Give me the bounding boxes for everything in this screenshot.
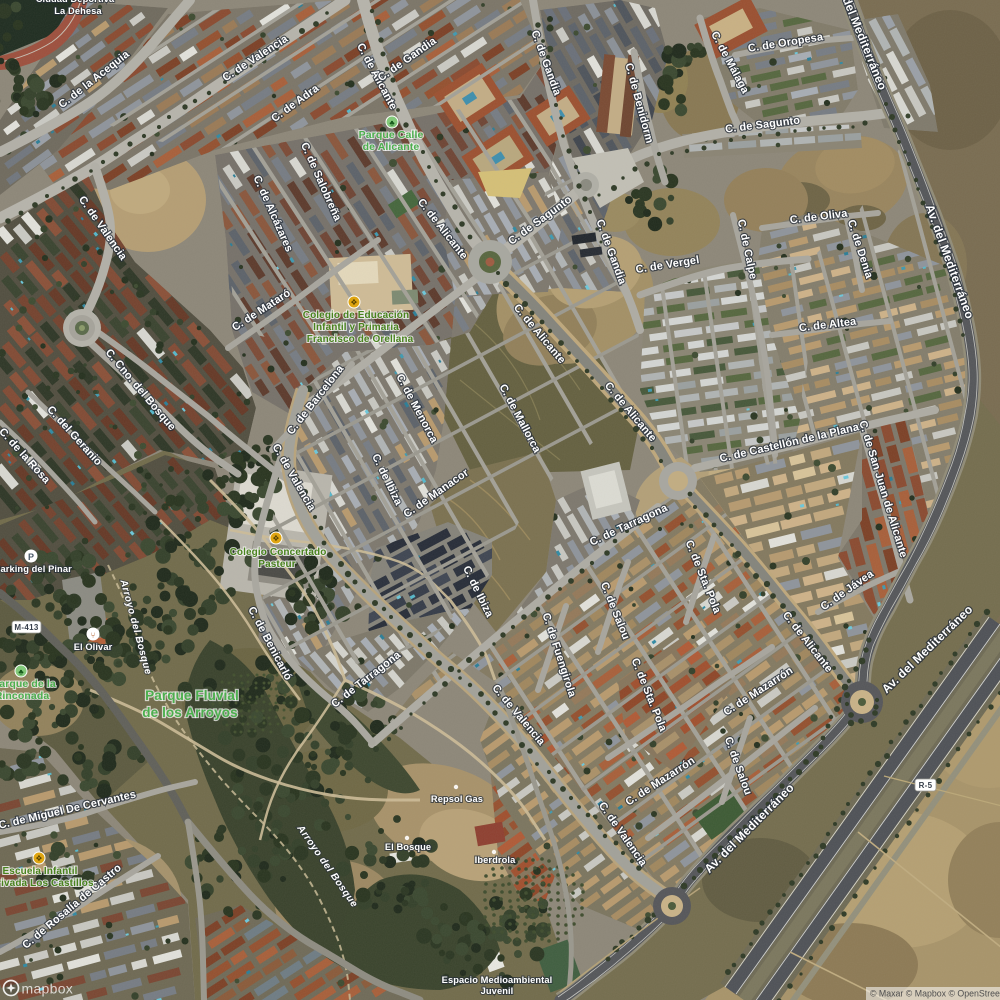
svg-text:Privada Los Castillos: Privada Los Castillos xyxy=(0,878,94,889)
svg-text:© Maxar © Mapbox © OpenStreetM: © Maxar © Mapbox © OpenStreetMap xyxy=(870,989,1000,999)
svg-text:El Bosque: El Bosque xyxy=(385,842,431,852)
svg-text:♣: ♣ xyxy=(389,119,395,128)
svg-text:Repsol Gas: Repsol Gas xyxy=(431,794,483,804)
svg-text:♣: ♣ xyxy=(18,668,24,677)
svg-text:R-5: R-5 xyxy=(919,781,933,790)
svg-text:Parque Calle: Parque Calle xyxy=(359,129,424,141)
svg-text:Parking del Pinar: Parking del Pinar xyxy=(0,564,72,574)
svg-text:❖: ❖ xyxy=(272,534,279,543)
svg-text:Espacio Medioambiental: Espacio Medioambiental xyxy=(442,975,553,985)
svg-text:Francisco de Orellana: Francisco de Orellana xyxy=(307,334,414,345)
svg-text:Parque Fluvial: Parque Fluvial xyxy=(145,688,239,703)
svg-text:Iberdrola: Iberdrola xyxy=(475,855,516,865)
svg-text:de los Arroyos: de los Arroyos xyxy=(142,705,237,720)
svg-text:Rinconada: Rinconada xyxy=(0,690,49,702)
svg-text:P: P xyxy=(28,552,34,562)
svg-text:Escuela Infantil: Escuela Infantil xyxy=(3,866,78,877)
svg-text:❖: ❖ xyxy=(35,854,42,863)
svg-text:El Olivar: El Olivar xyxy=(74,642,113,652)
svg-text:Juvenil: Juvenil xyxy=(481,986,514,996)
svg-text:M-413: M-413 xyxy=(14,623,38,632)
svg-text:Colegio de Educación: Colegio de Educación xyxy=(303,310,409,321)
svg-text:Pasteur: Pasteur xyxy=(258,559,295,570)
svg-text:Ciudad Deportiva: Ciudad Deportiva xyxy=(36,0,115,4)
svg-text:mapbox: mapbox xyxy=(22,981,74,997)
svg-text:Infantil y Primaria: Infantil y Primaria xyxy=(313,322,399,333)
svg-text:Colegio Concertado: Colegio Concertado xyxy=(230,547,327,558)
svg-text:⑂: ⑂ xyxy=(91,631,96,640)
svg-text:❖: ❖ xyxy=(350,298,357,307)
svg-text:Parque de la: Parque de la xyxy=(0,678,56,690)
svg-text:La Dehesa: La Dehesa xyxy=(54,6,102,16)
svg-text:de Alicante: de Alicante xyxy=(363,141,420,153)
